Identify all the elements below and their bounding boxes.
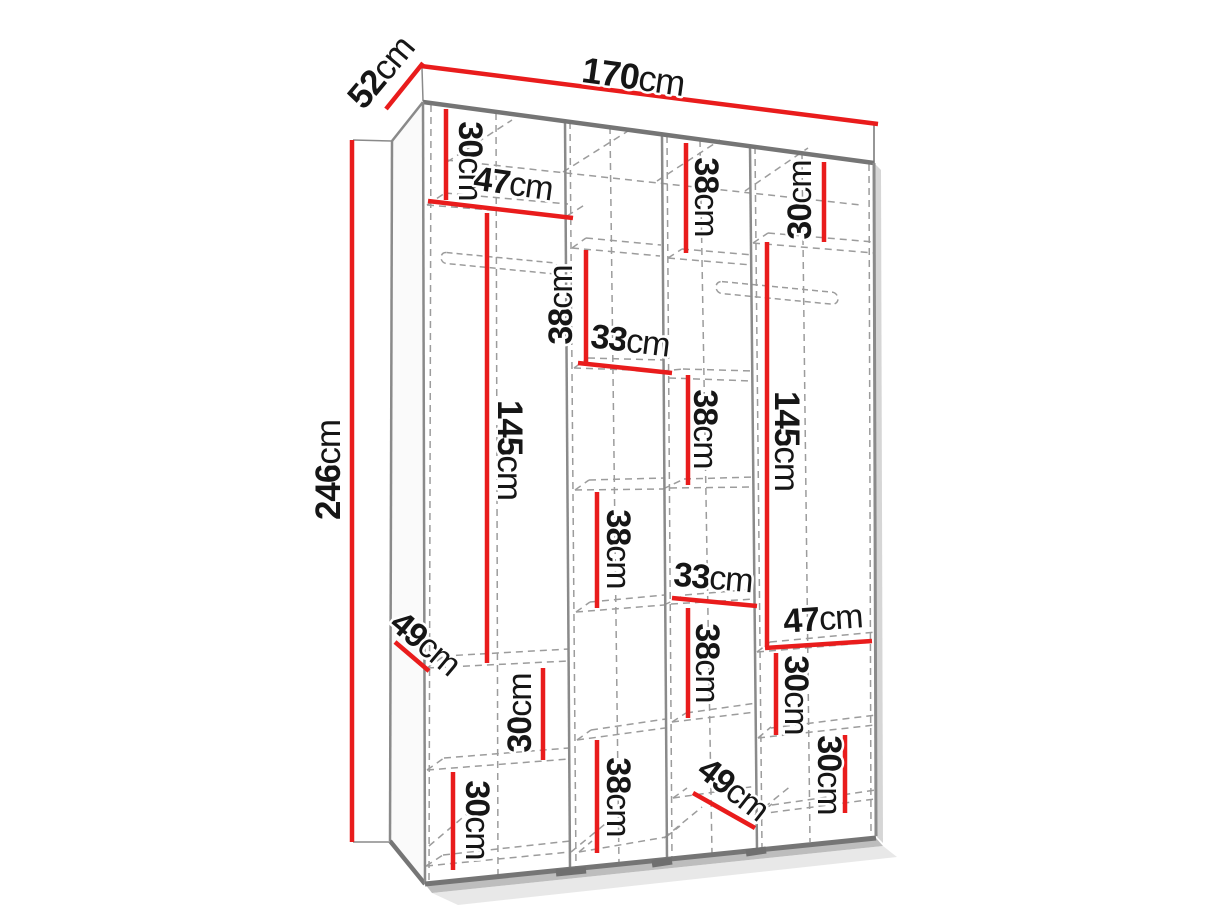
label-c1-hang-145: 145cm xyxy=(490,400,529,500)
base-foot-notch xyxy=(652,861,672,864)
label-depth-52: 52cm xyxy=(340,29,422,117)
cabinet-edge xyxy=(874,163,876,836)
label-c1-mid-30-value: 30 xyxy=(501,717,539,753)
label-c3-width-33: 33cm xyxy=(672,556,754,601)
label-c1-width-47-value: 47 xyxy=(471,160,512,203)
label-c1-low-30-value: 30 xyxy=(458,780,496,816)
label-c1-hang-145-unit: cm xyxy=(490,455,529,500)
label-c3-top-38-value: 38 xyxy=(687,157,725,193)
label-c3-width-33-value: 33 xyxy=(672,556,711,597)
label-c4-mid-30: 30cm xyxy=(777,655,815,734)
label-c4-low-30: 30cm xyxy=(810,735,848,814)
label-c4-top-30: 30cm xyxy=(781,160,819,239)
label-c1-hang-145-value: 145 xyxy=(490,400,529,456)
wardrobe-diagram-svg: 52cm170cm246cm30cm47cm38cm33cm38cm30cm14… xyxy=(0,0,1214,911)
label-c2-top-38: 38cm xyxy=(542,265,580,344)
label-c4-hang-145: 145cm xyxy=(767,391,806,491)
label-c3-top-38: 38cm xyxy=(687,157,725,236)
label-c1-low-30-unit: cm xyxy=(458,816,496,859)
label-c1-low-30: 30cm xyxy=(458,780,496,859)
label-c1-mid-30: 30cm xyxy=(501,673,539,752)
label-c3-mid-38-unit: cm xyxy=(686,425,724,468)
label-height-246-unit: cm xyxy=(309,420,348,465)
label-c2-low-38-value: 38 xyxy=(599,757,637,793)
label-c4-mid-30-unit: cm xyxy=(777,691,815,734)
base-foot-notch xyxy=(746,850,766,853)
label-c4-width-47-value: 47 xyxy=(782,600,820,640)
wardrobe-dimension-diagram: 52cm170cm246cm30cm47cm38cm33cm38cm30cm14… xyxy=(0,0,1214,911)
label-c3-low-38-unit: cm xyxy=(688,659,726,702)
label-c4-hang-145-unit: cm xyxy=(767,446,806,491)
label-c1-top-30-value: 30 xyxy=(451,121,489,157)
label-c3-width-33-unit: cm xyxy=(708,559,754,601)
base-foot-notch xyxy=(556,870,586,873)
label-c4-top-30-value: 30 xyxy=(781,204,819,240)
label-width-170-unit: cm xyxy=(636,57,687,104)
label-c2-mid-38: 38cm xyxy=(599,509,637,588)
label-c2-low-38-unit: cm xyxy=(599,793,637,836)
label-c4-mid-30-value: 30 xyxy=(777,655,815,691)
label-c3-low-38-value: 38 xyxy=(688,623,726,659)
label-c2-mid-38-value: 38 xyxy=(599,509,637,545)
label-c2-mid-38-unit: cm xyxy=(599,545,637,588)
label-c2-width-33-unit: cm xyxy=(624,322,672,365)
label-c3-low-38: 38cm xyxy=(688,623,726,702)
label-c2-top-38-unit: cm xyxy=(542,265,580,308)
label-c4-hang-145-value: 145 xyxy=(767,391,806,447)
label-c3-mid-38-value: 38 xyxy=(686,389,724,425)
label-c4-top-30-unit: cm xyxy=(781,160,819,203)
label-c2-low-38: 38cm xyxy=(599,757,637,836)
left-side-face xyxy=(390,102,425,884)
label-width-170-value: 170 xyxy=(580,49,642,98)
label-c2-top-38-value: 38 xyxy=(542,309,580,345)
label-c1-width-47-unit: cm xyxy=(507,165,555,209)
label-height-246: 246cm xyxy=(309,420,348,520)
label-c4-width-47-unit: cm xyxy=(818,597,864,638)
label-c2-width-33-value: 33 xyxy=(589,317,629,359)
label-c3-mid-38: 38cm xyxy=(686,389,724,468)
label-c1-mid-30-unit: cm xyxy=(501,673,539,716)
label-c3-top-38-unit: cm xyxy=(687,193,725,236)
label-c4-low-30-value: 30 xyxy=(810,735,848,771)
label-c4-width-47: 47cm xyxy=(782,597,864,640)
label-height-246-value: 246 xyxy=(309,464,348,520)
cabinet-edge xyxy=(422,68,423,101)
cabinet-edge xyxy=(353,140,392,141)
label-c4-low-30-unit: cm xyxy=(810,771,848,814)
